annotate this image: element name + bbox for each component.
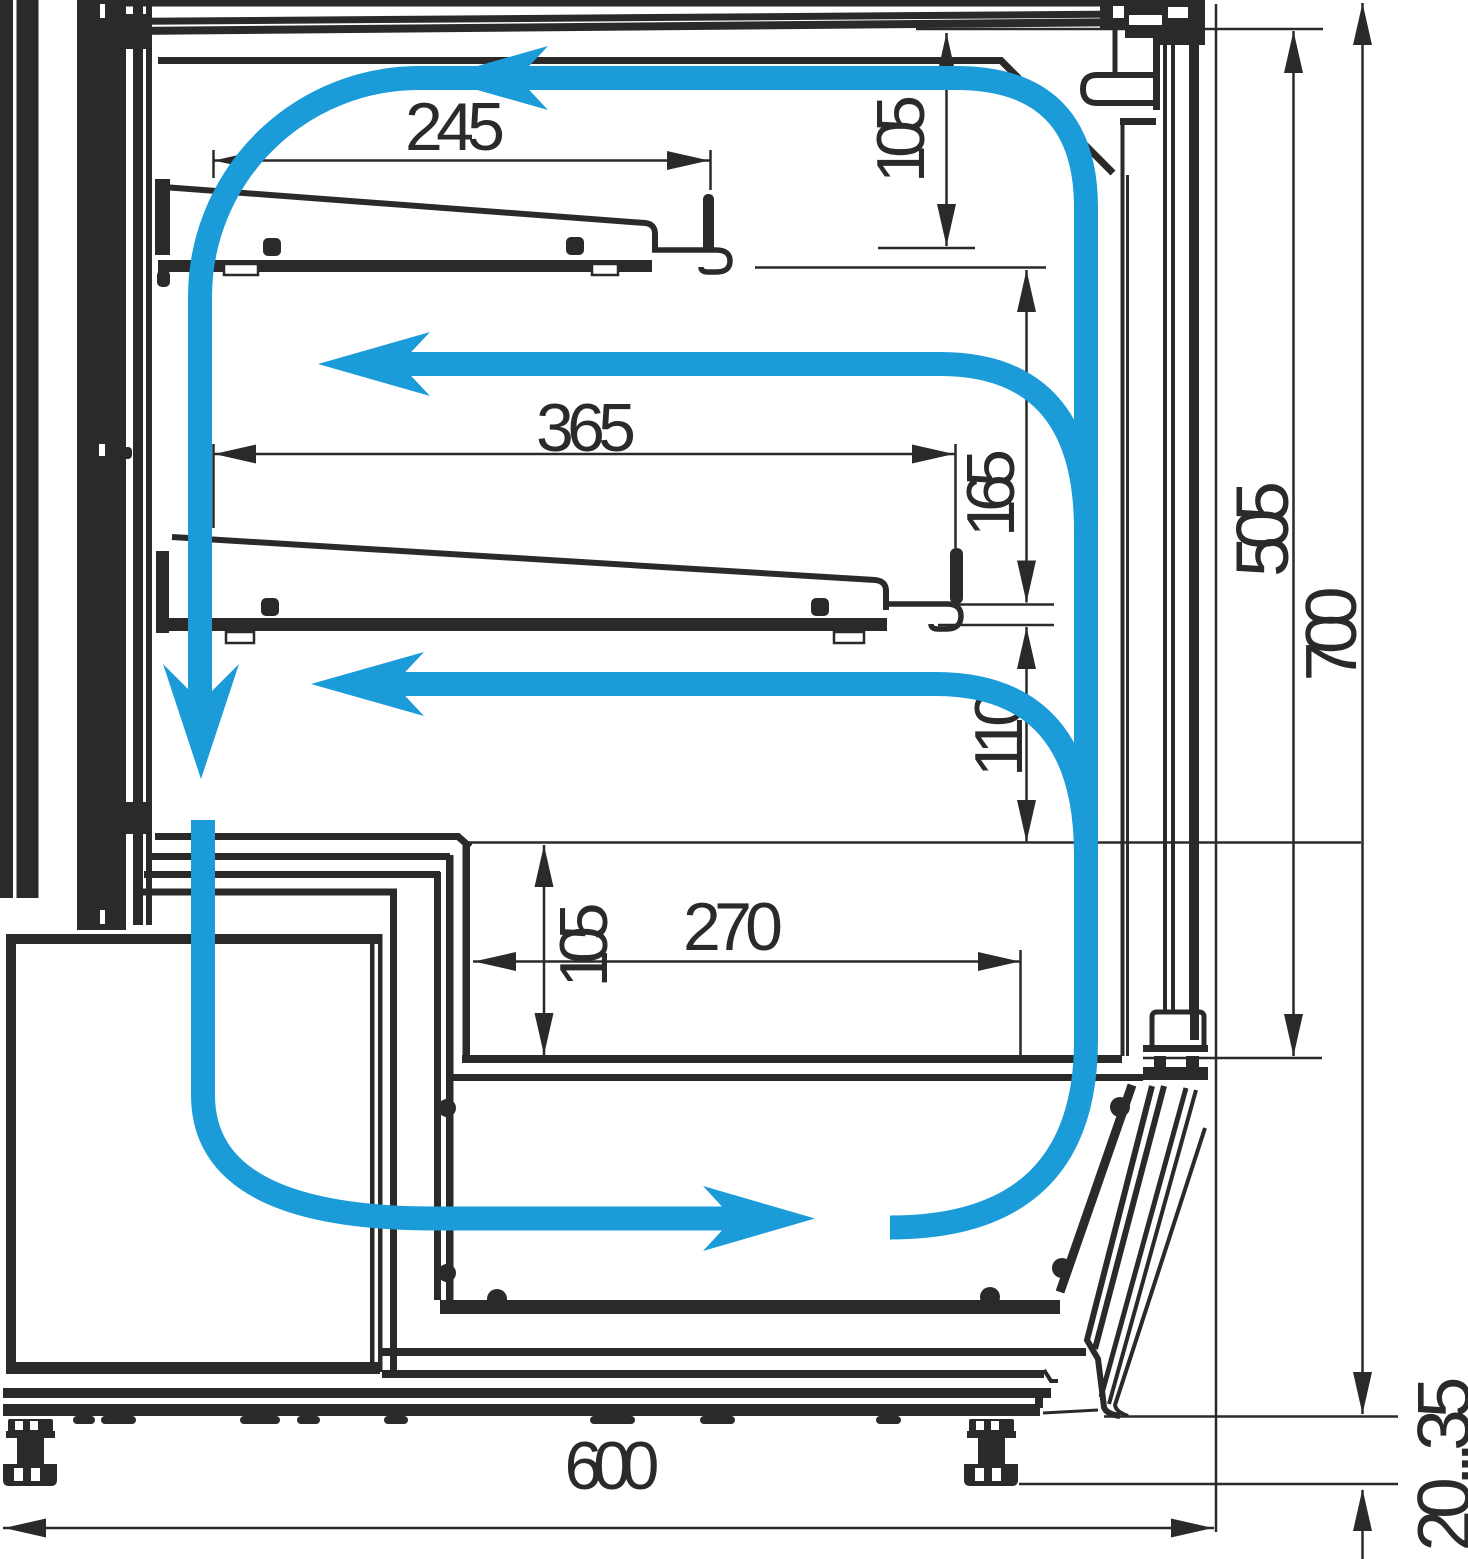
svg-text:245: 245 xyxy=(405,89,505,165)
svg-text:600: 600 xyxy=(565,1428,660,1504)
svg-text:105: 105 xyxy=(863,95,939,183)
svg-text:20...35: 20...35 xyxy=(1402,1377,1468,1552)
svg-text:270: 270 xyxy=(683,889,783,965)
svg-text:165: 165 xyxy=(953,449,1029,537)
svg-text:105: 105 xyxy=(546,903,622,988)
svg-text:700: 700 xyxy=(1292,587,1372,682)
svg-text:505: 505 xyxy=(1221,481,1304,577)
svg-text:365: 365 xyxy=(536,390,636,466)
